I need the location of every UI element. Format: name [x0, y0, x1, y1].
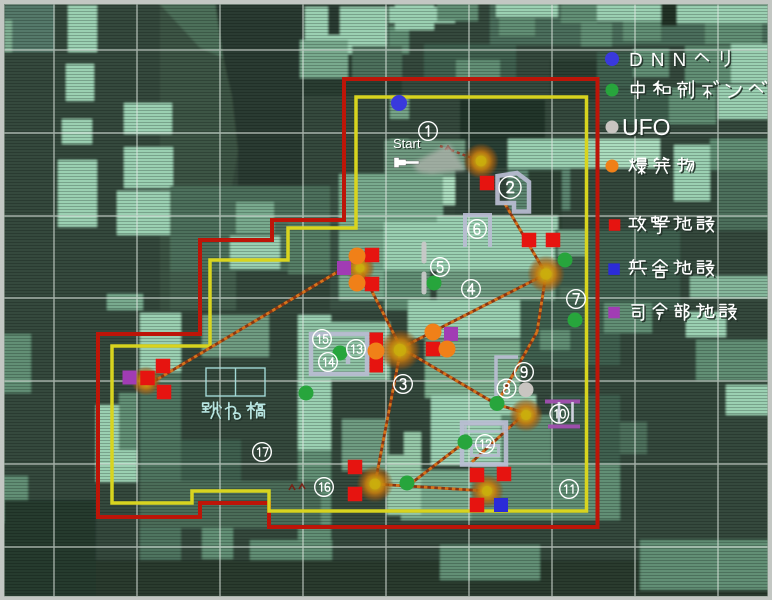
svg-text:Start: Start	[393, 136, 421, 151]
svg-text:UFO: UFO	[622, 114, 671, 140]
svg-text:DNN: DNN	[629, 50, 694, 71]
